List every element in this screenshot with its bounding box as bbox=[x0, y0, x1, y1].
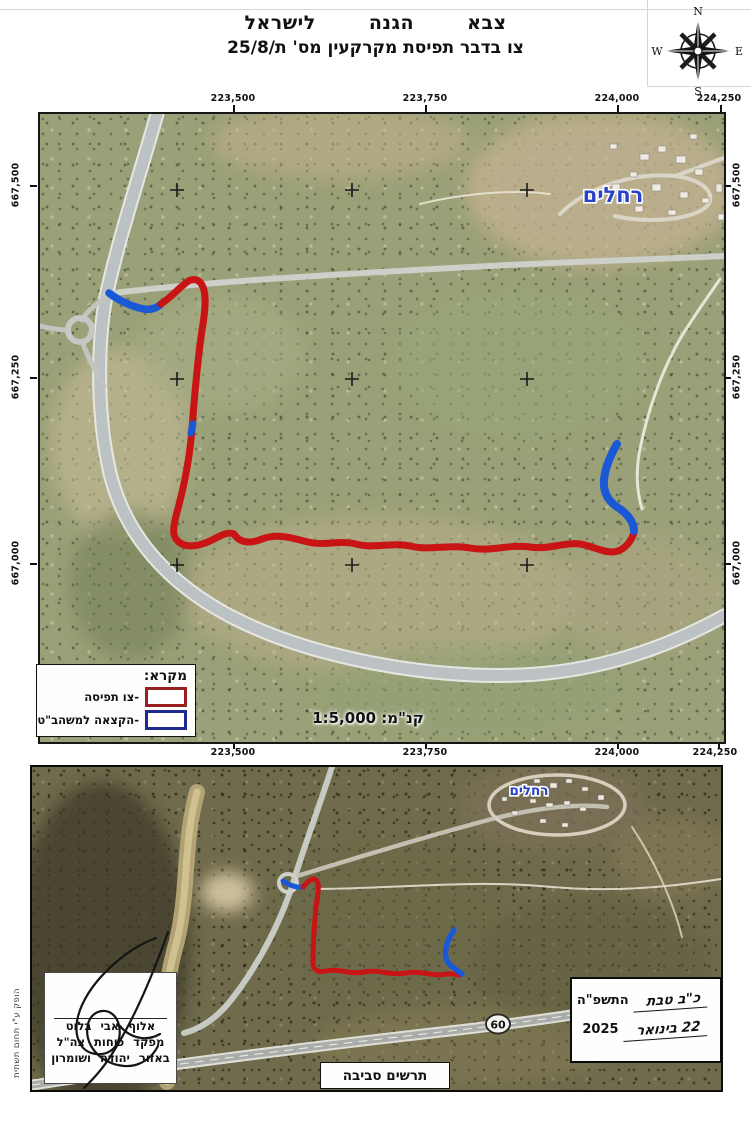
hebrew-date-handwritten: כ"ב טבת bbox=[633, 989, 708, 1012]
legend-row-seizure: -צו תפיסה bbox=[41, 687, 187, 707]
tick bbox=[720, 105, 722, 112]
order-number: 25/8/ת bbox=[227, 38, 287, 58]
coord-left-2: 667,250 bbox=[11, 355, 22, 400]
map-scale-label: קנ"מ: 1:5,000 bbox=[288, 709, 448, 727]
coord-left-1: 667,500 bbox=[11, 163, 22, 208]
signatory-name: אלוף אבי בלוט bbox=[45, 1019, 176, 1035]
order-title-text: צו בדבר תפיסת מקרקעין מס' bbox=[287, 38, 524, 58]
gregorian-date-handwritten: 22 בינואר bbox=[623, 1018, 708, 1042]
coord-top-4: 224,250 bbox=[697, 93, 742, 104]
coord-top-1: 223,500 bbox=[211, 93, 256, 104]
compass-rose-icon: N S E W bbox=[650, 4, 746, 100]
document-header: צבא הגנה לישראל צו בדבר תפיסת מקרקעין מס… bbox=[0, 12, 751, 58]
army-title: צבא הגנה לישראל bbox=[0, 12, 751, 34]
coord-right-1: 667,500 bbox=[732, 163, 743, 208]
tick bbox=[233, 105, 235, 112]
coord-bottom-4: 224,250 bbox=[693, 747, 738, 758]
signature-block: אלוף אבי בלוט מפקד כוחות צה"ל באזור יהוד… bbox=[44, 972, 177, 1084]
seizure-swatch bbox=[145, 687, 187, 707]
hebrew-date-row: כ"ב טבתהתשפ"ה bbox=[580, 992, 708, 1010]
legend-label-seizure: -צו תפיסה bbox=[84, 690, 139, 704]
legend-label-allocation: -הקצאה למשהב"ט bbox=[37, 713, 139, 727]
compass-east-label: E bbox=[735, 45, 743, 58]
scanned-order-page: צבא הגנה לישראל צו בדבר תפיסת מקרקעין מס… bbox=[0, 0, 751, 1125]
allocation-segment-east bbox=[604, 444, 634, 531]
overview-caption: תרשים סביבה bbox=[320, 1062, 450, 1089]
hebrew-year-printed: התשפ"ה bbox=[577, 993, 629, 1008]
coord-left-3: 667,000 bbox=[11, 541, 22, 586]
date-block: כ"ב טבתהתשפ"ה 22 בינואר2025 bbox=[570, 977, 722, 1063]
main-map-overlay: רחלים bbox=[40, 114, 724, 742]
legend-row-allocation: -הקצאה למשהב"ט bbox=[41, 710, 187, 730]
legend-box: מקרא: -צו תפיסה -הקצאה למשהב"ט bbox=[36, 664, 196, 737]
legend-title: מקרא: bbox=[41, 668, 187, 684]
produced-by-text: הופק ע"י תחום תשתית bbox=[12, 967, 22, 1099]
tick bbox=[425, 105, 427, 112]
coord-right-3: 667,000 bbox=[732, 541, 743, 586]
coord-right-2: 667,250 bbox=[732, 355, 743, 400]
compass-north-label: N bbox=[693, 5, 703, 18]
allocation-mark-small bbox=[191, 424, 193, 433]
terrain-patches bbox=[50, 114, 724, 734]
signatory-title: מפקד כוחות צה"ל bbox=[45, 1035, 176, 1051]
settlement-label-overview: רחלים bbox=[510, 783, 549, 799]
scan-artifact-line bbox=[0, 9, 751, 10]
tick bbox=[30, 185, 37, 187]
allocation-segment-west bbox=[109, 293, 161, 309]
tick bbox=[30, 377, 37, 379]
gregorian-year-printed: 2025 bbox=[582, 1022, 618, 1037]
gregorian-date-row: 22 בינואר2025 bbox=[580, 1021, 708, 1039]
settlement-label-main: רחלים bbox=[583, 183, 644, 207]
signature-line bbox=[54, 973, 167, 1019]
main-aerial-map: רחלים bbox=[38, 112, 726, 744]
allocation-swatch bbox=[145, 710, 187, 730]
tick bbox=[30, 563, 37, 565]
route-60-label: 60 bbox=[490, 1019, 506, 1032]
coord-top-3: 224,000 bbox=[595, 93, 640, 104]
order-title: צו בדבר תפיסת מקרקעין מס' 25/8/ת bbox=[0, 38, 751, 58]
signatory-region: באזור יהודה ושומרון bbox=[45, 1051, 176, 1067]
coord-top-2: 223,750 bbox=[403, 93, 448, 104]
tick bbox=[617, 105, 619, 112]
compass-west-label: W bbox=[651, 45, 663, 58]
